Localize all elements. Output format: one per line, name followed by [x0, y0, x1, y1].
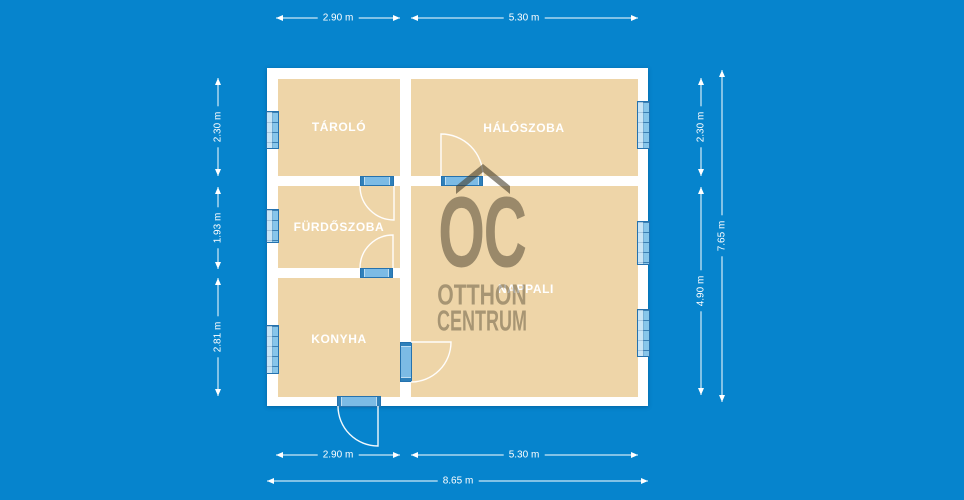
door-sill-konyha-nappali: [400, 342, 412, 382]
window-tarolo: [266, 111, 279, 149]
door-sill-furdoszoba-konyha: [360, 268, 393, 278]
door-sill-entrance: [337, 396, 381, 407]
dim-label-left-3: 2.81 m: [212, 317, 225, 358]
floorplan-canvas: TÁROLÓ HÁLÓSZOBA FÜRDŐSZOBA KONYHA NAPPA…: [0, 0, 964, 500]
dim-arrow: [215, 78, 221, 85]
dim-arrow: [267, 478, 274, 484]
dim-label-right-total: 7.65 m: [716, 216, 729, 257]
window-nappali-lower: [637, 309, 650, 357]
dim-arrow: [698, 169, 704, 176]
dim-arrow: [276, 452, 283, 458]
dim-label-top-2: 5.30 m: [504, 12, 545, 25]
dim-arrow: [215, 187, 221, 194]
door-arc-entrance: [338, 406, 378, 446]
dim-arrow: [276, 15, 283, 21]
window-haloszoba: [637, 101, 650, 149]
window-konyha: [266, 325, 279, 374]
dim-arrow: [215, 278, 221, 285]
dim-arrow: [719, 70, 725, 77]
dim-label-bottom-1: 2.90 m: [318, 449, 359, 462]
dim-arrow: [698, 388, 704, 395]
room-label-konyha: KONYHA: [311, 332, 367, 346]
dim-label-right-2: 4.90 m: [695, 271, 708, 312]
door-sill-haloszoba-nappali: [441, 176, 483, 186]
dim-arrow: [393, 15, 400, 21]
window-nappali-upper: [637, 221, 650, 265]
dim-label-bottom-total: 8.65 m: [438, 475, 479, 488]
dim-arrow: [698, 187, 704, 194]
dim-label-bottom-2: 5.30 m: [504, 449, 545, 462]
dim-arrow: [215, 169, 221, 176]
dim-label-left-2: 1.93 m: [212, 208, 225, 249]
dim-arrow: [411, 15, 418, 21]
door-sill-tarolo-furdoszoba: [360, 176, 394, 186]
window-furdoszoba: [266, 209, 279, 243]
dim-label-left-1: 2.30 m: [212, 107, 225, 148]
dim-arrow: [215, 389, 221, 396]
dim-arrow: [631, 452, 638, 458]
room-label-tarolo: TÁROLÓ: [312, 120, 366, 134]
dim-arrow: [631, 15, 638, 21]
dim-arrow: [641, 478, 648, 484]
dim-arrow: [698, 78, 704, 85]
room-label-nappali: NAPPALI: [498, 282, 554, 296]
dim-arrow: [719, 395, 725, 402]
room-label-haloszoba: HÁLÓSZOBA: [483, 121, 564, 135]
dim-label-top-1: 2.90 m: [318, 12, 359, 25]
dim-arrow: [411, 452, 418, 458]
dim-arrow: [393, 452, 400, 458]
dim-arrow: [215, 262, 221, 269]
dim-label-right-1: 2.30 m: [695, 107, 708, 148]
room-label-furdoszoba: FÜRDŐSZOBA: [294, 220, 385, 234]
